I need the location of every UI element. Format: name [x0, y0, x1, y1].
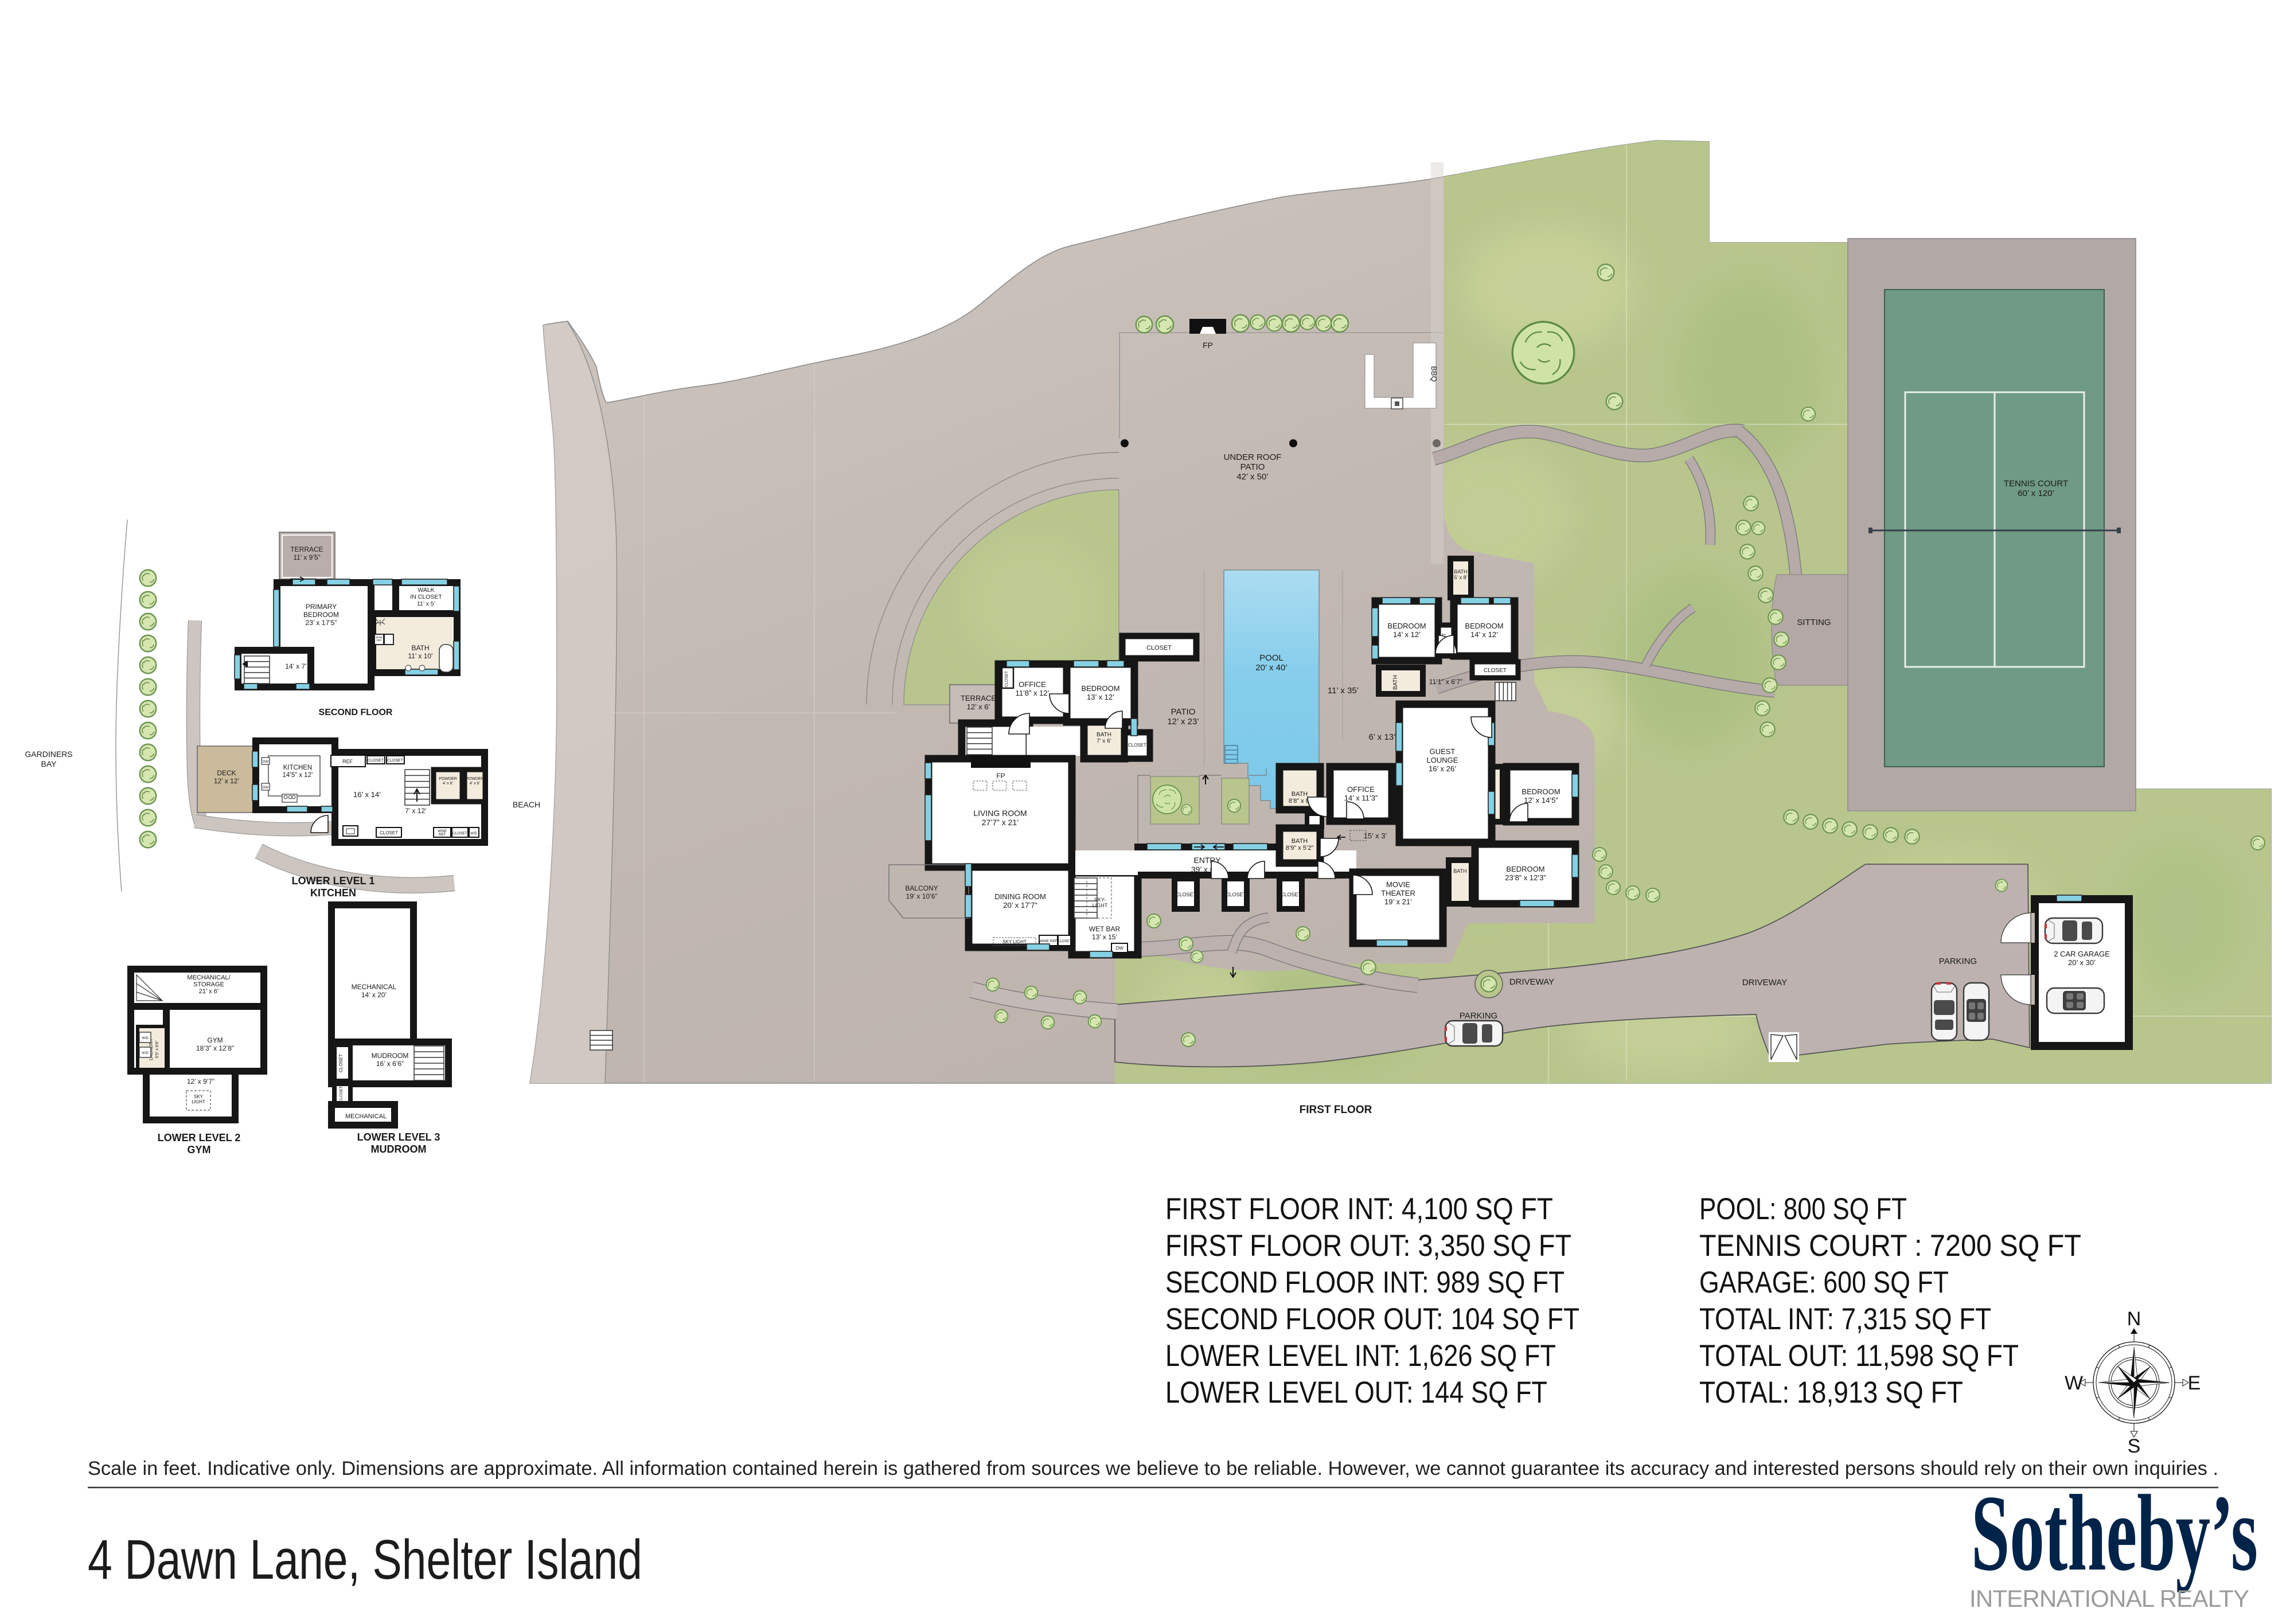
- svg-text:GARAGE: 600 SQ FT: GARAGE: 600 SQ FT: [1699, 1266, 1949, 1299]
- svg-text:14’5” x 12’: 14’5” x 12’: [282, 772, 313, 779]
- svg-text:SKY-: SKY-: [1094, 897, 1106, 903]
- svg-text:SITTING: SITTING: [1797, 618, 1831, 627]
- svg-text:LOWER LEVEL OUT: 144 SQ FT: LOWER LEVEL OUT: 144 SQ FT: [1165, 1376, 1547, 1410]
- svg-text:PATIO: PATIO: [1171, 707, 1196, 717]
- svg-text:KITCHEN: KITCHEN: [310, 887, 356, 899]
- svg-text:FP: FP: [996, 772, 1005, 780]
- svg-text:19’ x 21’: 19’ x 21’: [1384, 897, 1412, 906]
- svg-text:11’ x 9’5”: 11’ x 9’5”: [293, 553, 320, 561]
- svg-text:SECOND FLOOR OUT: 104 SQ FT: SECOND FLOOR OUT: 104 SQ FT: [1165, 1302, 1579, 1336]
- svg-text:BATH: BATH: [1292, 838, 1308, 845]
- svg-text:BATH: BATH: [1453, 868, 1466, 874]
- svg-text:W/D: W/D: [142, 1052, 149, 1055]
- svg-text:4 Dawn Lane, Shelter Island: 4 Dawn Lane, Shelter Island: [88, 1528, 642, 1591]
- svg-text:POWDER: POWDER: [439, 777, 457, 781]
- svg-text:DRIVEWAY: DRIVEWAY: [1509, 977, 1554, 987]
- svg-text:TENNIS COURT: TENNIS COURT: [2004, 479, 2068, 489]
- svg-text:PRIMARY: PRIMARY: [306, 603, 337, 611]
- svg-text:TERRACE: TERRACE: [290, 545, 323, 553]
- svg-text:27’7” x 21’: 27’7” x 21’: [982, 818, 1019, 827]
- svg-text:23’8” x 12’3”: 23’8” x 12’3”: [1505, 873, 1546, 882]
- svg-text:20’ x 30’: 20’ x 30’: [2068, 958, 2096, 967]
- svg-text:DECK: DECK: [217, 769, 236, 777]
- svg-text:BATH: BATH: [1392, 675, 1399, 690]
- svg-text:12’ x 6’: 12’ x 6’: [967, 702, 990, 711]
- svg-text:PARKING: PARKING: [1460, 1011, 1497, 1021]
- svg-text:WALK: WALK: [418, 587, 434, 594]
- svg-text:20’ x 17’7”: 20’ x 17’7”: [1003, 901, 1037, 909]
- svg-text:LIGHT: LIGHT: [192, 1099, 205, 1104]
- svg-text:6’ x 13’: 6’ x 13’: [1369, 732, 1396, 742]
- svg-text:14’ x 11’3”: 14’ x 11’3”: [1344, 794, 1378, 802]
- svg-text:W/D: W/D: [142, 1037, 149, 1040]
- svg-text:LOWER LEVEL INT: 1,626 SQ FT: LOWER LEVEL INT: 1,626 SQ FT: [1165, 1339, 1556, 1373]
- svg-text:WINE REF: WINE REF: [1039, 939, 1058, 943]
- svg-text:LOWER LEVEL 3: LOWER LEVEL 3: [357, 1131, 440, 1143]
- svg-text:11’8” x 12’: 11’8” x 12’: [1015, 689, 1049, 697]
- svg-text:TENNIS COURT : 7200 SQ FT: TENNIS COURT : 7200 SQ FT: [1699, 1229, 2081, 1263]
- svg-text:THEATER: THEATER: [1381, 889, 1415, 897]
- svg-text:CLOSET: CLOSET: [1005, 670, 1009, 687]
- svg-text:TERRACE: TERRACE: [961, 694, 996, 702]
- svg-text:12’ x 9’7”: 12’ x 9’7”: [187, 1078, 214, 1086]
- svg-text:12’ x 23’: 12’ x 23’: [1167, 717, 1199, 727]
- svg-text:STORAGE: STORAGE: [193, 981, 224, 988]
- svg-text:BATH: BATH: [411, 644, 429, 652]
- svg-text:WET BAR: WET BAR: [1089, 925, 1121, 933]
- svg-text:POOL: POOL: [1259, 653, 1283, 663]
- svg-text:DINING ROOM: DINING ROOM: [994, 892, 1046, 901]
- svg-text:CLOSET: CLOSET: [387, 759, 404, 763]
- svg-text:11’ x 10’: 11’ x 10’: [408, 652, 432, 660]
- svg-text:POWDER: POWDER: [466, 777, 484, 781]
- svg-text:14’ x 7’: 14’ x 7’: [285, 662, 307, 670]
- svg-text:E: E: [2188, 1372, 2201, 1394]
- svg-text:TOTAL: 18,913 SQ FT: TOTAL: 18,913 SQ FT: [1699, 1376, 1963, 1410]
- svg-text:GYM: GYM: [207, 1036, 223, 1044]
- svg-text:LIGHT: LIGHT: [1093, 903, 1108, 908]
- svg-text:S: S: [2128, 1435, 2141, 1457]
- svg-text:MUDROOM: MUDROOM: [372, 1052, 409, 1060]
- svg-text:OFFICE: OFFICE: [1019, 680, 1046, 689]
- svg-text:SECOND FLOOR INT: 989 SQ FT: SECOND FLOOR INT: 989 SQ FT: [1165, 1266, 1565, 1299]
- svg-text:CLOSET: CLOSET: [1226, 892, 1247, 897]
- svg-text:14’ x 12’: 14’ x 12’: [1393, 630, 1421, 639]
- svg-text:PARKING: PARKING: [1939, 957, 1977, 966]
- svg-text:FIRST FLOOR: FIRST FLOOR: [1300, 1104, 1372, 1116]
- svg-text:13’ x 15’: 13’ x 15’: [1092, 933, 1117, 941]
- svg-text:20’ x 40’: 20’ x 40’: [1255, 663, 1287, 673]
- svg-text:TOTAL INT: 7,315 SQ FT: TOTAL INT: 7,315 SQ FT: [1699, 1302, 1991, 1336]
- svg-text:BEDROOM: BEDROOM: [1506, 865, 1544, 873]
- svg-text:16’ x 14’: 16’ x 14’: [353, 790, 381, 799]
- svg-text:TOTAL OUT: 11,598 SQ FT: TOTAL OUT: 11,598 SQ FT: [1699, 1339, 2019, 1373]
- svg-text:8’9” x 5’2”: 8’9” x 5’2”: [1286, 845, 1314, 852]
- svg-text:W/D: W/D: [470, 832, 477, 836]
- svg-text:4’ x 6’: 4’ x 6’: [470, 782, 480, 786]
- svg-text:13’ x 12’: 13’ x 12’: [1087, 693, 1114, 701]
- svg-text:18’3” x 12’8”: 18’3” x 12’8”: [196, 1044, 234, 1052]
- svg-text:REF: REF: [377, 639, 382, 642]
- svg-text:BBQ: BBQ: [1430, 366, 1438, 381]
- svg-text:GARDINERS: GARDINERS: [25, 749, 72, 759]
- svg-text:60’ x 120’: 60’ x 120’: [2018, 489, 2054, 498]
- svg-text:LIVING ROOM: LIVING ROOM: [973, 809, 1027, 818]
- svg-text:14’ x 20’: 14’ x 20’: [361, 991, 387, 999]
- svg-text:Scale in feet. Indicative only: Scale in feet. Indicative only. Dimensio…: [88, 1458, 2218, 1479]
- svg-text:BEDROOM: BEDROOM: [1521, 787, 1560, 796]
- svg-text:CLOSET: CLOSET: [1058, 940, 1071, 943]
- svg-text:12’ x 14’5”: 12’ x 14’5”: [1524, 796, 1558, 805]
- svg-text:CLOSET: CLOSET: [1176, 892, 1197, 897]
- svg-text:11’1” x 6’7”: 11’1” x 6’7”: [1429, 678, 1462, 686]
- svg-text:PATIO: PATIO: [1240, 462, 1265, 472]
- svg-text:7’ x 6’: 7’ x 6’: [1097, 738, 1111, 744]
- svg-text:SECOND FLOOR: SECOND FLOOR: [319, 708, 393, 717]
- svg-text:GYM: GYM: [187, 1144, 210, 1155]
- svg-text:DRIVEWAY: DRIVEWAY: [1742, 978, 1787, 987]
- svg-text:INTERNATIONAL REALTY: INTERNATIONAL REALTY: [1969, 1585, 2253, 1612]
- svg-text:FP: FP: [1203, 341, 1213, 350]
- svg-text:LOUNGE: LOUNGE: [1427, 756, 1458, 764]
- svg-text:BEDROOM: BEDROOM: [303, 611, 339, 619]
- svg-text:CLOSET: CLOSET: [338, 1054, 344, 1072]
- svg-text:11’ x 35’: 11’ x 35’: [1328, 686, 1359, 696]
- svg-text:FIRST FLOOR INT: 4,100 SQ FT: FIRST FLOOR INT: 4,100 SQ FT: [1165, 1192, 1553, 1226]
- svg-text:SKY: SKY: [194, 1094, 204, 1099]
- svg-text:BEDROOM: BEDROOM: [1465, 622, 1503, 630]
- svg-text:MECHANICAL/: MECHANICAL/: [187, 974, 231, 981]
- svg-text:16’ x 26’: 16’ x 26’: [1429, 764, 1456, 773]
- svg-text:42’ x 50’: 42’ x 50’: [1236, 472, 1268, 482]
- svg-text:5’5” x 9’6”: 5’5” x 9’6”: [155, 1040, 159, 1058]
- svg-text:GUEST: GUEST: [1430, 747, 1456, 756]
- svg-text:21’ x 6’: 21’ x 6’: [199, 988, 219, 995]
- svg-text:CLOSET: CLOSET: [380, 830, 398, 836]
- svg-text:BEACH: BEACH: [513, 800, 540, 809]
- svg-text:REF: REF: [439, 833, 446, 837]
- svg-text:UNDER ROOF: UNDER ROOF: [1224, 452, 1282, 462]
- svg-text:4’ x 6’: 4’ x 6’: [443, 782, 453, 786]
- svg-text:CLOSET: CLOSET: [452, 831, 467, 836]
- svg-text:2 CAR GARAGE: 2 CAR GARAGE: [2054, 950, 2110, 958]
- svg-text:BATH: BATH: [1454, 569, 1467, 575]
- svg-text:MUDROOM: MUDROOM: [371, 1143, 427, 1155]
- svg-text:7’ x 12’: 7’ x 12’: [405, 807, 427, 815]
- svg-text:23’ x 17’5”: 23’ x 17’5”: [306, 619, 337, 627]
- svg-text:BALCONY: BALCONY: [905, 884, 938, 892]
- svg-text:CLOSET: CLOSET: [1484, 667, 1507, 674]
- svg-text:19’ x 10’6”: 19’ x 10’6”: [906, 892, 938, 900]
- svg-text:IN CLOSET: IN CLOSET: [410, 594, 442, 600]
- svg-text:MECHANICAL: MECHANICAL: [345, 1113, 387, 1120]
- svg-text:MECHANICAL: MECHANICAL: [352, 983, 397, 991]
- svg-text:Sotheby’s: Sotheby’s: [1971, 1473, 2258, 1594]
- svg-text:BATH: BATH: [1097, 732, 1111, 738]
- svg-text:BEDROOM: BEDROOM: [1081, 684, 1119, 693]
- svg-text:11’ x 5’: 11’ x 5’: [417, 600, 435, 607]
- svg-text:14’ x 12’: 14’ x 12’: [1470, 630, 1498, 639]
- svg-text:BAY: BAY: [41, 759, 57, 768]
- svg-text:12’ x 12’: 12’ x 12’: [214, 777, 239, 785]
- svg-text:CLOSET: CLOSET: [368, 759, 384, 763]
- svg-text:KITCHEN: KITCHEN: [283, 764, 312, 771]
- svg-text:POOL: 800 SQ FT: POOL: 800 SQ FT: [1699, 1192, 1907, 1226]
- svg-text:N: N: [2127, 1308, 2141, 1330]
- svg-text:OFFICE: OFFICE: [1347, 785, 1375, 794]
- svg-text:SKY LIGHT: SKY LIGHT: [1002, 939, 1027, 944]
- svg-text:CLOSET: CLOSET: [1146, 645, 1172, 651]
- svg-text:16’ x 6’6”: 16’ x 6’6”: [376, 1060, 404, 1068]
- svg-text:DW: DW: [263, 786, 270, 790]
- svg-text:5’ x 8’: 5’ x 8’: [1454, 575, 1467, 580]
- svg-text:REF: REF: [342, 759, 353, 764]
- svg-text:LOWER LEVEL 1: LOWER LEVEL 1: [292, 875, 375, 887]
- svg-text:DW: DW: [263, 760, 270, 764]
- svg-text:FIRST FLOOR OUT: 3,350 SQ FT: FIRST FLOOR OUT: 3,350 SQ FT: [1165, 1229, 1571, 1263]
- svg-text:DW: DW: [1115, 946, 1123, 951]
- svg-text:CLOSET: CLOSET: [1128, 743, 1146, 748]
- svg-text:BEDROOM: BEDROOM: [1387, 622, 1426, 630]
- svg-text:BATH: BATH: [1292, 791, 1308, 798]
- svg-text:15’ x 3’: 15’ x 3’: [1364, 831, 1387, 840]
- svg-text:CLOSET: CLOSET: [340, 1086, 344, 1102]
- svg-text:CLOSET: CLOSET: [1281, 892, 1302, 897]
- svg-text:LOWER LEVEL 2: LOWER LEVEL 2: [158, 1132, 241, 1143]
- svg-text:W: W: [2065, 1372, 2083, 1394]
- svg-text:MOVIE: MOVIE: [1386, 880, 1410, 889]
